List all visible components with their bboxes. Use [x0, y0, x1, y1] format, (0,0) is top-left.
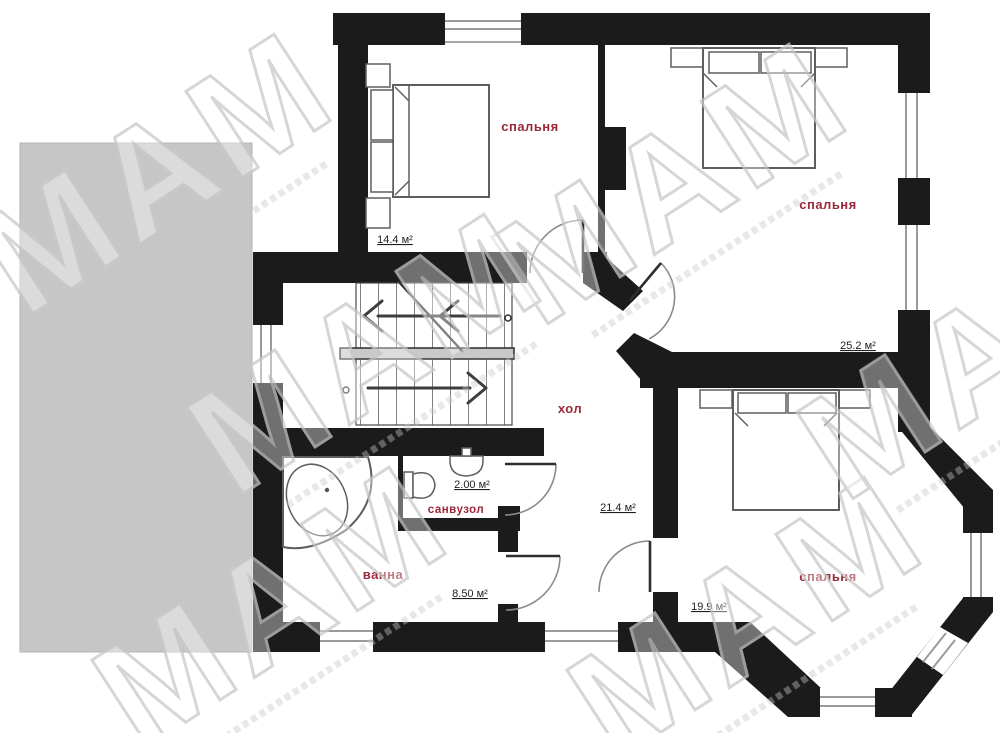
window-top-bedroom1: [445, 13, 521, 45]
pillow: [371, 90, 393, 140]
area-label-wc: 2.00 м²: [454, 479, 490, 491]
window-bay-south: [820, 688, 875, 717]
door-bathroom: [506, 556, 560, 610]
floor-plan-canvas: МАМ: [0, 0, 1000, 733]
area-label-hall: 21.4 м²: [600, 502, 636, 514]
wall-hall-bath-a: [498, 518, 518, 552]
area-label-bathroom: 8.50 м²: [452, 588, 488, 600]
wall-hall-bath-b: [498, 604, 518, 652]
nightstand: [700, 390, 732, 408]
wall-hall-bedroom3-a: [653, 360, 678, 538]
wall-top: [333, 13, 930, 45]
nightstand: [366, 64, 390, 87]
window-right-bedroom2-upper: [898, 93, 930, 178]
room-label-hall: хол: [558, 401, 582, 416]
sink-tap: [462, 448, 471, 456]
window-bay-east: [963, 533, 993, 597]
room-label-bedroom-top-left: спальня: [501, 119, 559, 134]
floor-plan-page: МАМ: [0, 0, 1000, 733]
sink: [450, 456, 483, 476]
pillow: [371, 142, 393, 192]
nightstand: [366, 198, 390, 228]
